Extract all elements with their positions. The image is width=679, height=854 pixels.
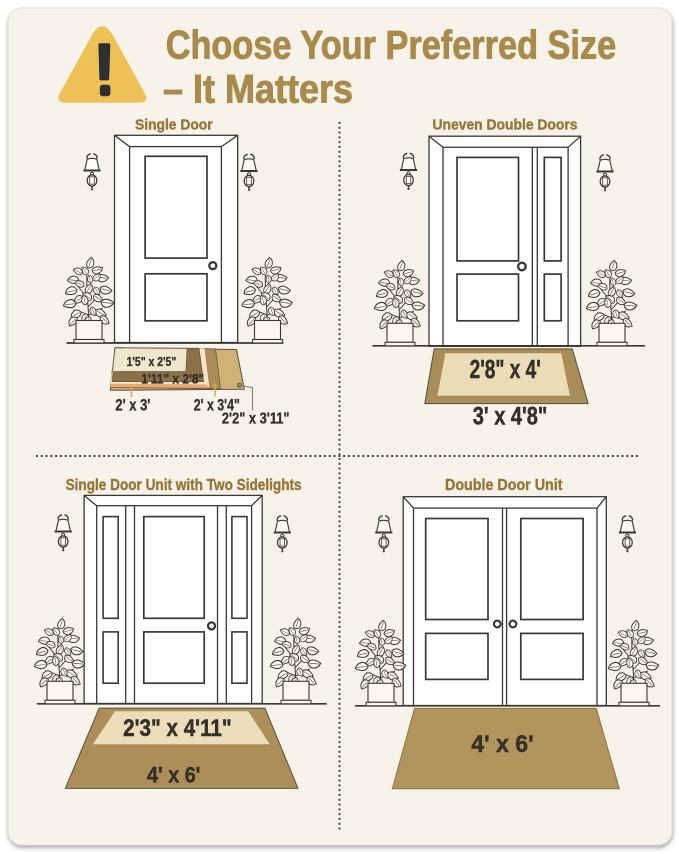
svg-text:Double Door Unit: Double Door Unit: [445, 477, 563, 494]
svg-text:1'11" x 2'8": 1'11" x 2'8": [141, 371, 204, 386]
svg-text:2'3" x 4'11": 2'3" x 4'11": [123, 715, 232, 742]
svg-text:3' x 4'8": 3' x 4'8": [473, 402, 548, 430]
svg-text:Choose Your Preferred Size: Choose Your Preferred Size: [166, 23, 617, 67]
svg-text:Single Door Unit with Two Side: Single Door Unit with Two Sidelights: [66, 477, 302, 494]
svg-text:1'5" x 2'5": 1'5" x 2'5": [127, 355, 177, 369]
svg-text:4' x 6': 4' x 6': [147, 762, 200, 787]
svg-text:2' x 3': 2' x 3': [115, 395, 150, 414]
svg-text:2'8" x 4': 2'8" x 4': [470, 356, 541, 384]
svg-text:– It Matters: – It Matters: [163, 67, 353, 111]
svg-text:Uneven Double Doors: Uneven Double Doors: [433, 116, 578, 133]
svg-text:Single Door: Single Door: [135, 116, 213, 133]
svg-text:2'2" x 3'11": 2'2" x 3'11": [222, 411, 290, 428]
svg-text:4' x 6': 4' x 6': [471, 731, 533, 758]
